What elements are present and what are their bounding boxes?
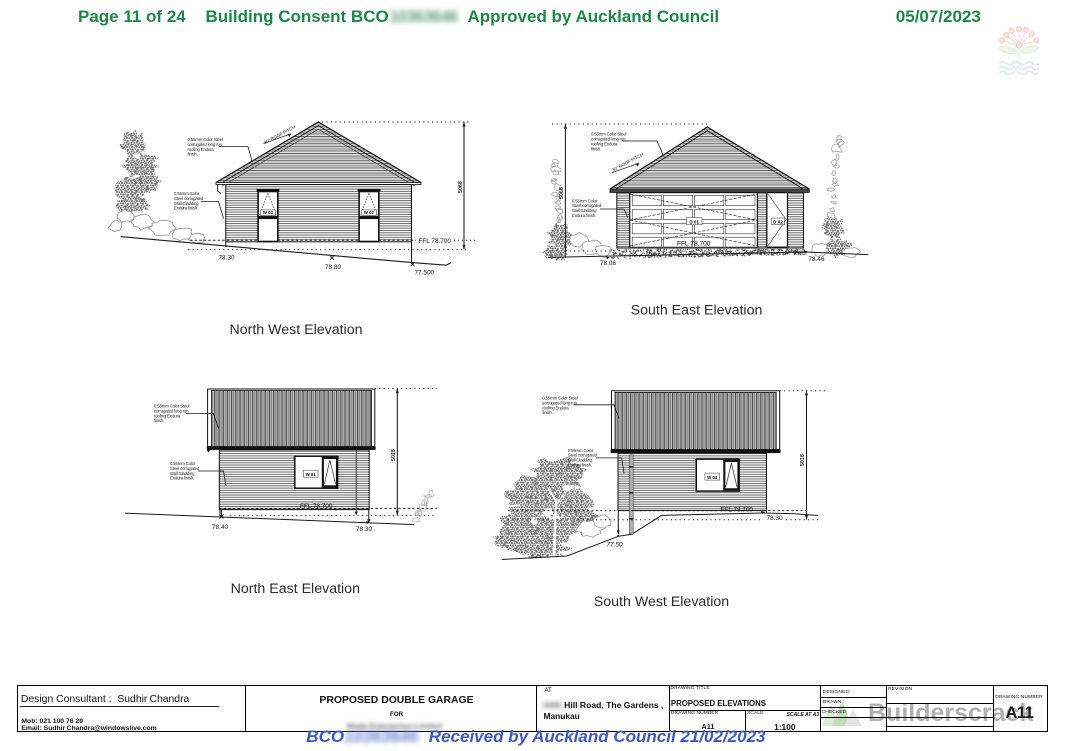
svg-text:W 04: W 04 [707, 475, 718, 480]
svg-text:finish.: finish. [154, 418, 164, 423]
svg-text:5068: 5068 [559, 187, 565, 199]
svg-text:Endura finish.: Endura finish. [572, 213, 596, 218]
svg-text:FFL 78.700: FFL 78.700 [300, 503, 333, 510]
svg-text:78.40: 78.40 [212, 524, 228, 531]
svg-text:5018: 5018 [800, 454, 806, 466]
svg-text:W 03: W 03 [263, 210, 274, 215]
svg-text:South East Elevation: South East Elevation [631, 303, 763, 319]
svg-text:D 01: D 01 [689, 219, 699, 224]
svg-text:78.30: 78.30 [219, 255, 235, 262]
svg-text:Endura finish.: Endura finish. [568, 463, 592, 468]
svg-text:5018: 5018 [391, 449, 397, 461]
svg-text:Endura finish.: Endura finish. [174, 206, 198, 211]
svg-text:finish.: finish. [542, 410, 552, 415]
svg-text:W 01: W 01 [306, 472, 317, 477]
svg-text:5068: 5068 [458, 181, 464, 193]
svg-text:78.30: 78.30 [356, 526, 372, 533]
svg-text:78.06: 78.06 [600, 260, 616, 267]
svg-text:77.500: 77.500 [415, 270, 435, 277]
svg-text:South West Elevation: South West Elevation [594, 594, 729, 610]
svg-text:FFL 78.700: FFL 78.700 [721, 507, 754, 514]
svg-text:D 02: D 02 [773, 219, 783, 224]
svg-text:30° ROOF PITCH: 30° ROOF PITCH [611, 152, 644, 173]
svg-text:finish.: finish. [591, 146, 601, 151]
svg-text:78.46: 78.46 [809, 256, 825, 263]
svg-text:FFL 78.700: FFL 78.700 [677, 241, 711, 248]
svg-text:78.80: 78.80 [325, 264, 341, 271]
svg-text:77.50: 77.50 [607, 542, 623, 549]
svg-text:W 02: W 02 [364, 210, 375, 215]
svg-text:North West Elevation: North West Elevation [229, 322, 362, 338]
svg-text:North East Elevation: North East Elevation [231, 581, 360, 597]
svg-text:78.30: 78.30 [767, 515, 783, 522]
svg-text:finish.: finish. [188, 152, 198, 157]
svg-text:FFL 78.700: FFL 78.700 [419, 238, 452, 245]
svg-text:Endura finish.: Endura finish. [170, 476, 194, 481]
